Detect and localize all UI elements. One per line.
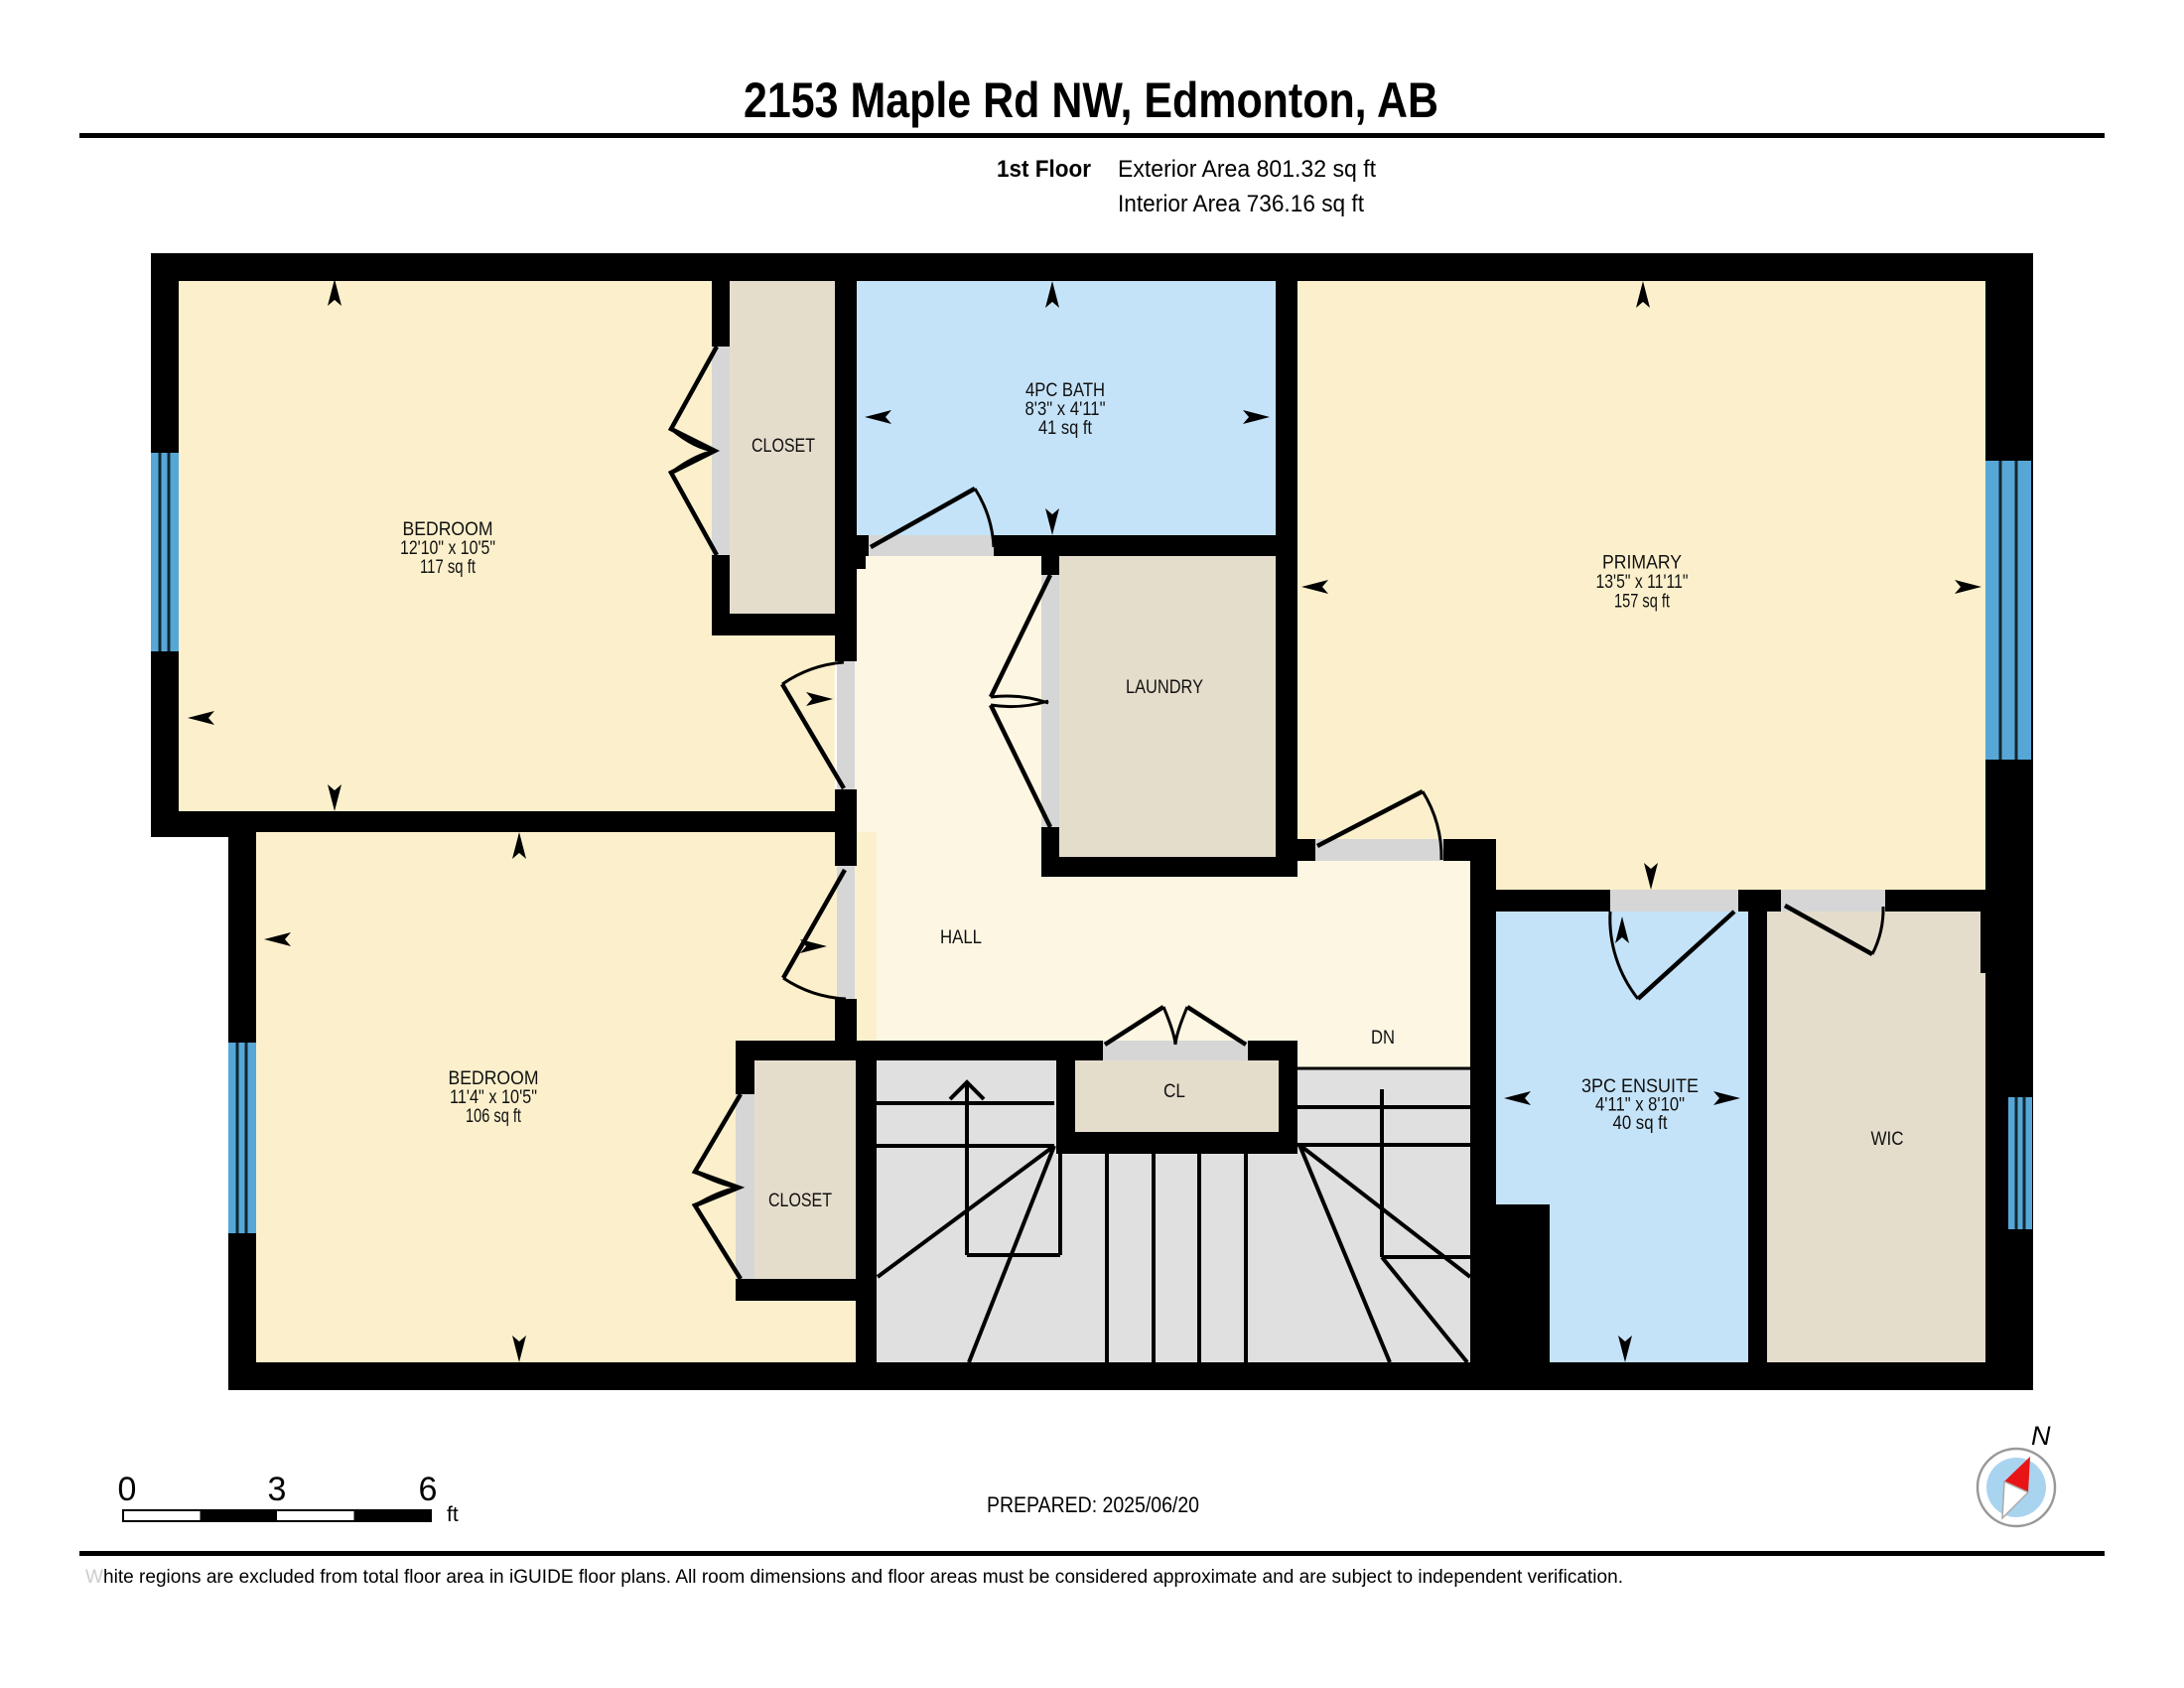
svg-text:0: 0 bbox=[118, 1471, 137, 1508]
svg-text:Interior Area 736.16 sq ft: Interior Area 736.16 sq ft bbox=[1118, 191, 1364, 217]
svg-text:HALL: HALL bbox=[940, 926, 982, 948]
svg-text:ft: ft bbox=[447, 1503, 459, 1526]
svg-text:White regions are excluded fro: White regions are excluded from total fl… bbox=[85, 1567, 1623, 1588]
svg-text:CLOSET: CLOSET bbox=[768, 1190, 832, 1211]
svg-text:3: 3 bbox=[268, 1471, 287, 1508]
svg-text:Exterior Area 801.32 sq ft: Exterior Area 801.32 sq ft bbox=[1118, 156, 1376, 183]
svg-text:157 sq ft: 157 sq ft bbox=[1614, 591, 1670, 613]
svg-text:2153 Maple Rd NW, Edmonton, AB: 2153 Maple Rd NW, Edmonton, AB bbox=[744, 72, 1438, 128]
svg-text:6: 6 bbox=[419, 1471, 438, 1508]
svg-text:CL: CL bbox=[1163, 1080, 1185, 1102]
svg-text:DN: DN bbox=[1371, 1027, 1395, 1049]
svg-text:106 sq ft: 106 sq ft bbox=[466, 1105, 521, 1127]
svg-text:117 sq ft: 117 sq ft bbox=[420, 556, 476, 578]
svg-text:40 sq ft: 40 sq ft bbox=[1613, 1112, 1668, 1134]
svg-text:WIC: WIC bbox=[1871, 1128, 1904, 1150]
svg-text:PREPARED: 2025/06/20: PREPARED: 2025/06/20 bbox=[987, 1492, 1199, 1517]
svg-text:LAUNDRY: LAUNDRY bbox=[1126, 676, 1203, 698]
svg-text:1st Floor: 1st Floor bbox=[997, 156, 1091, 183]
svg-text:41 sq ft: 41 sq ft bbox=[1038, 417, 1092, 439]
svg-text:N: N bbox=[2031, 1421, 2051, 1451]
svg-text:CLOSET: CLOSET bbox=[751, 435, 815, 457]
